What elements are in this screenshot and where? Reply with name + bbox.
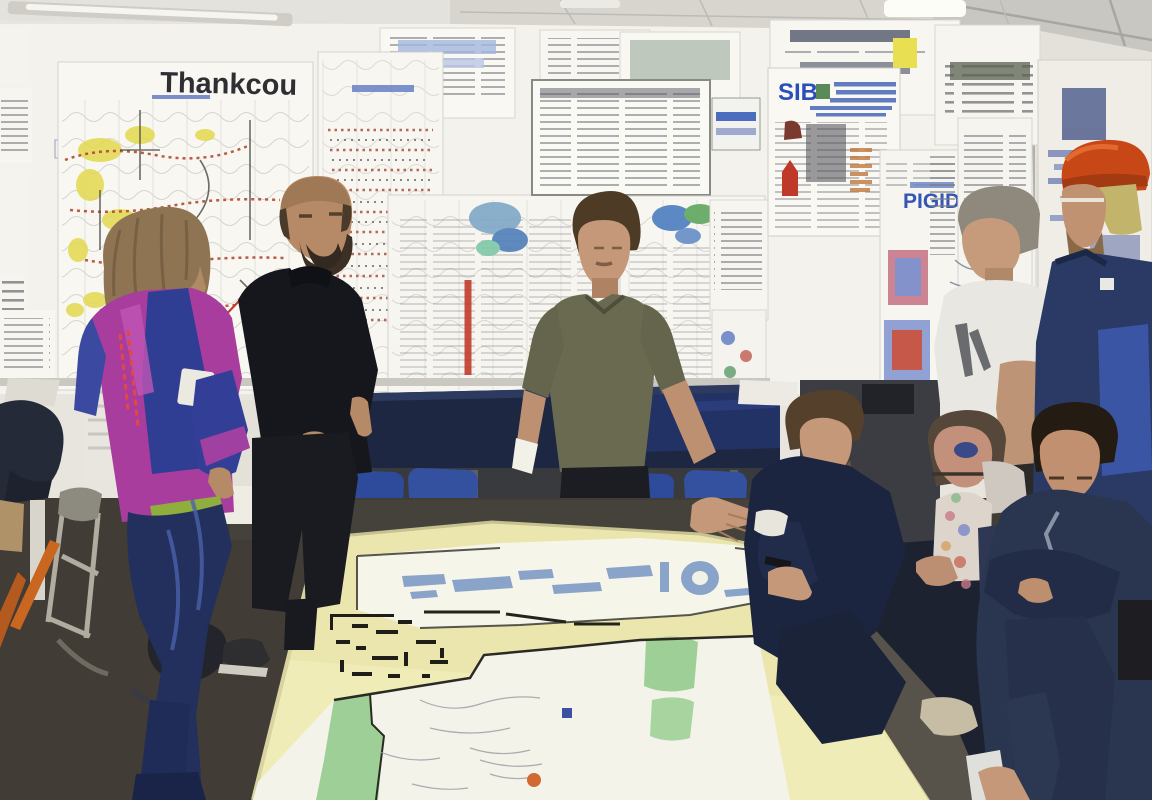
svg-text:SIB: SIB bbox=[778, 79, 818, 106]
